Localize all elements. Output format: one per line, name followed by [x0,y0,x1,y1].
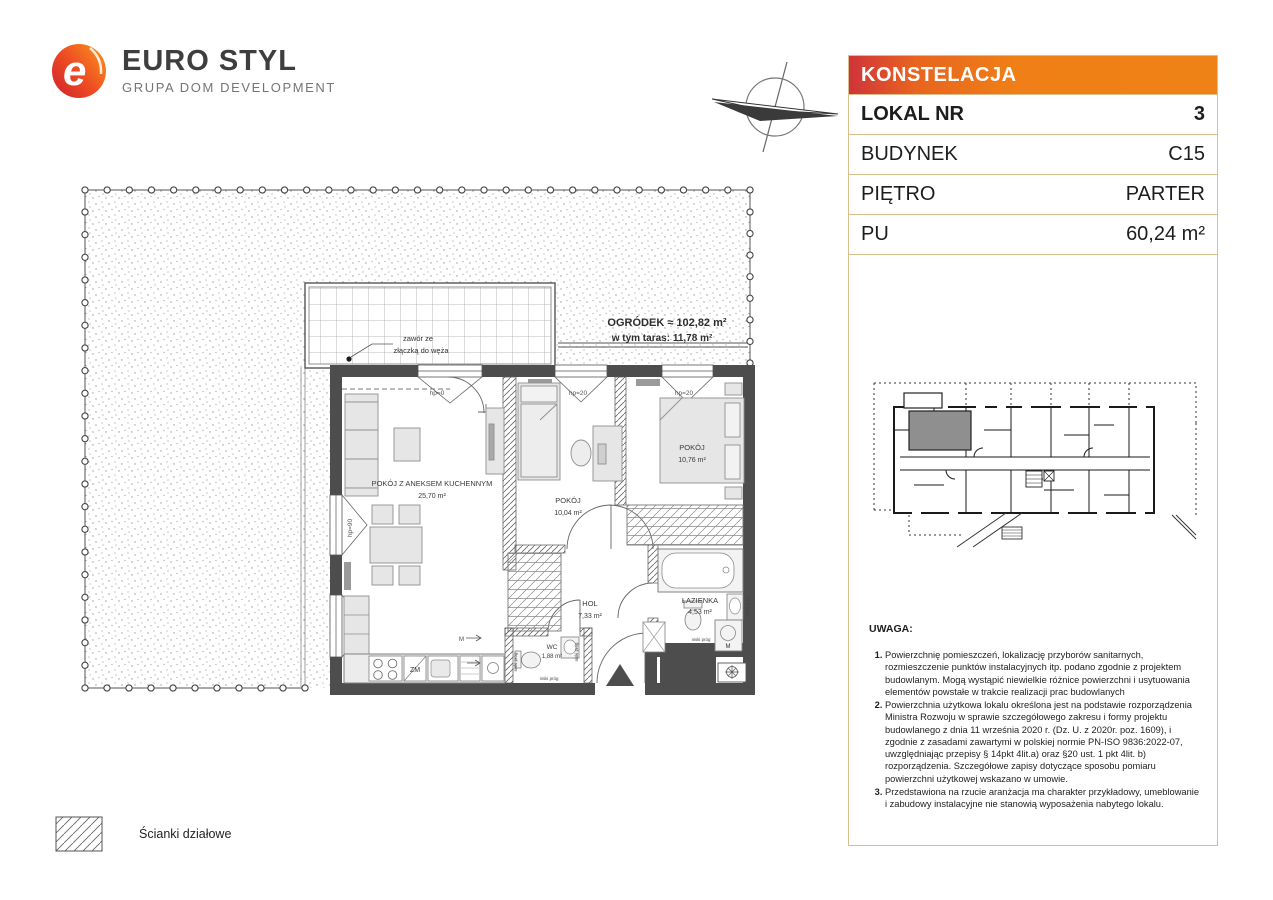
note-item: Powierzchnia użytkowa lokalu określona j… [885,699,1201,785]
hall-closet [508,553,561,631]
row-budynek-label: BUDYNEK [861,143,958,166]
wc-toilet [522,652,541,668]
legend-label: Ścianki działowe [139,827,231,841]
water-connection-label: M [459,637,464,643]
notes-list: Powierzchnię pomieszczeń, lokalizację pr… [869,649,1201,810]
row-pietro-value: PARTER [1126,183,1205,206]
bedroom-3-furniture [627,383,744,545]
kitchen: ZM M [344,596,505,683]
room-3-area: 10,76 m² [678,457,706,464]
threshold-bathroom-wall: niski próg [745,596,750,615]
valve-text-2: złączką do węża [393,346,449,355]
room-wc-name: WC [547,644,558,651]
window-label-hp20-b: hp=20 [675,390,694,397]
row-lokal-nr-value: 3 [1194,103,1205,126]
room-living-name: POKÓJ Z ANEKSEM KUCHENNYM [372,479,493,488]
wc-fixtures [515,637,579,668]
building-overview-plan [854,365,1212,555]
row-pietro: PIĘTRO PARTER [849,174,1217,214]
row-lokal-nr-label: LOKAL NR [861,103,964,126]
valve-text-1: zawór ze [403,334,433,343]
room-living-area: 25,70 m² [418,493,446,500]
notes: UWAGA: Powierzchnię pomieszczeń, lokaliz… [869,623,1201,811]
row-pu: PU 60,24 m² [849,214,1217,254]
room-2-area: 10,04 m² [554,510,582,517]
garden-area-text: OGRÓDEK ≈ 102,82 m² [607,316,726,329]
garden-terrace-text: w tym taras: 11,78 m² [611,333,713,344]
note-item: Powierzchnię pomieszczeń, lokalizację pr… [885,649,1201,698]
terrace [305,283,555,368]
window-label-hp20-a: hp=20 [569,390,588,397]
living-room-furniture [345,394,504,585]
notes-title: UWAGA: [869,623,1201,635]
room-hall-area: 7,33 m² [578,613,602,620]
room-hall-name: HOL [582,599,597,608]
info-panel: KONSTELACJA LOKAL NR 3 BUDYNEK C15 PIĘTR… [848,55,1218,846]
bedroom-wardrobe [627,505,743,545]
room-2-name: POKÓJ [555,496,581,505]
room-bathroom-area: 4,53 m² [688,609,712,616]
floor-plan-drawing: OGRÓDEK ≈ 102,82 m² w tym taras: 11,78 m… [0,0,860,760]
threshold-wc: niski próg [540,676,559,681]
room-bathroom-name: ŁAZIENKA [682,596,718,605]
highlighted-unit [909,411,971,450]
partition-wall-swatch-icon [55,816,103,852]
row-pietro-label: PIĘTRO [861,183,935,206]
panel-content: UWAGA: Powierzchnię pomieszczeń, lokaliz… [849,254,1217,847]
threshold-wc-right: niski próg [574,642,579,661]
row-pu-label: PU [861,223,889,246]
room-wc-area: 1,88 m² [542,654,562,660]
threshold-wc-left: niski próg [513,652,518,671]
row-lokal-nr: LOKAL NR 3 [849,94,1217,134]
floor-plan-sheet: e EURO STYL GRUPA DOM DEVELOPMENT [0,0,1273,900]
project-banner: KONSTELACJA [849,56,1217,94]
bedroom-2-furniture [508,383,622,631]
dishwasher-label: ZM [410,667,420,674]
row-pu-value: 60,24 m² [1126,223,1205,246]
entrance-marker [606,664,634,686]
window-label-hp0: hp=0 [430,390,445,397]
window-label-hp90-a: hp=90 [347,518,354,537]
row-budynek-value: C15 [1168,143,1205,166]
note-item: Przedstawiona na rzucie aranżacja ma cha… [885,786,1201,811]
legend: Ścianki działowe [55,816,231,852]
building-entrance-path [957,513,1022,547]
room-3-name: POKÓJ [679,443,705,452]
washer-label: M [726,644,731,650]
row-budynek: BUDYNEK C15 [849,134,1217,174]
threshold-bathroom: niski próg [692,637,711,642]
